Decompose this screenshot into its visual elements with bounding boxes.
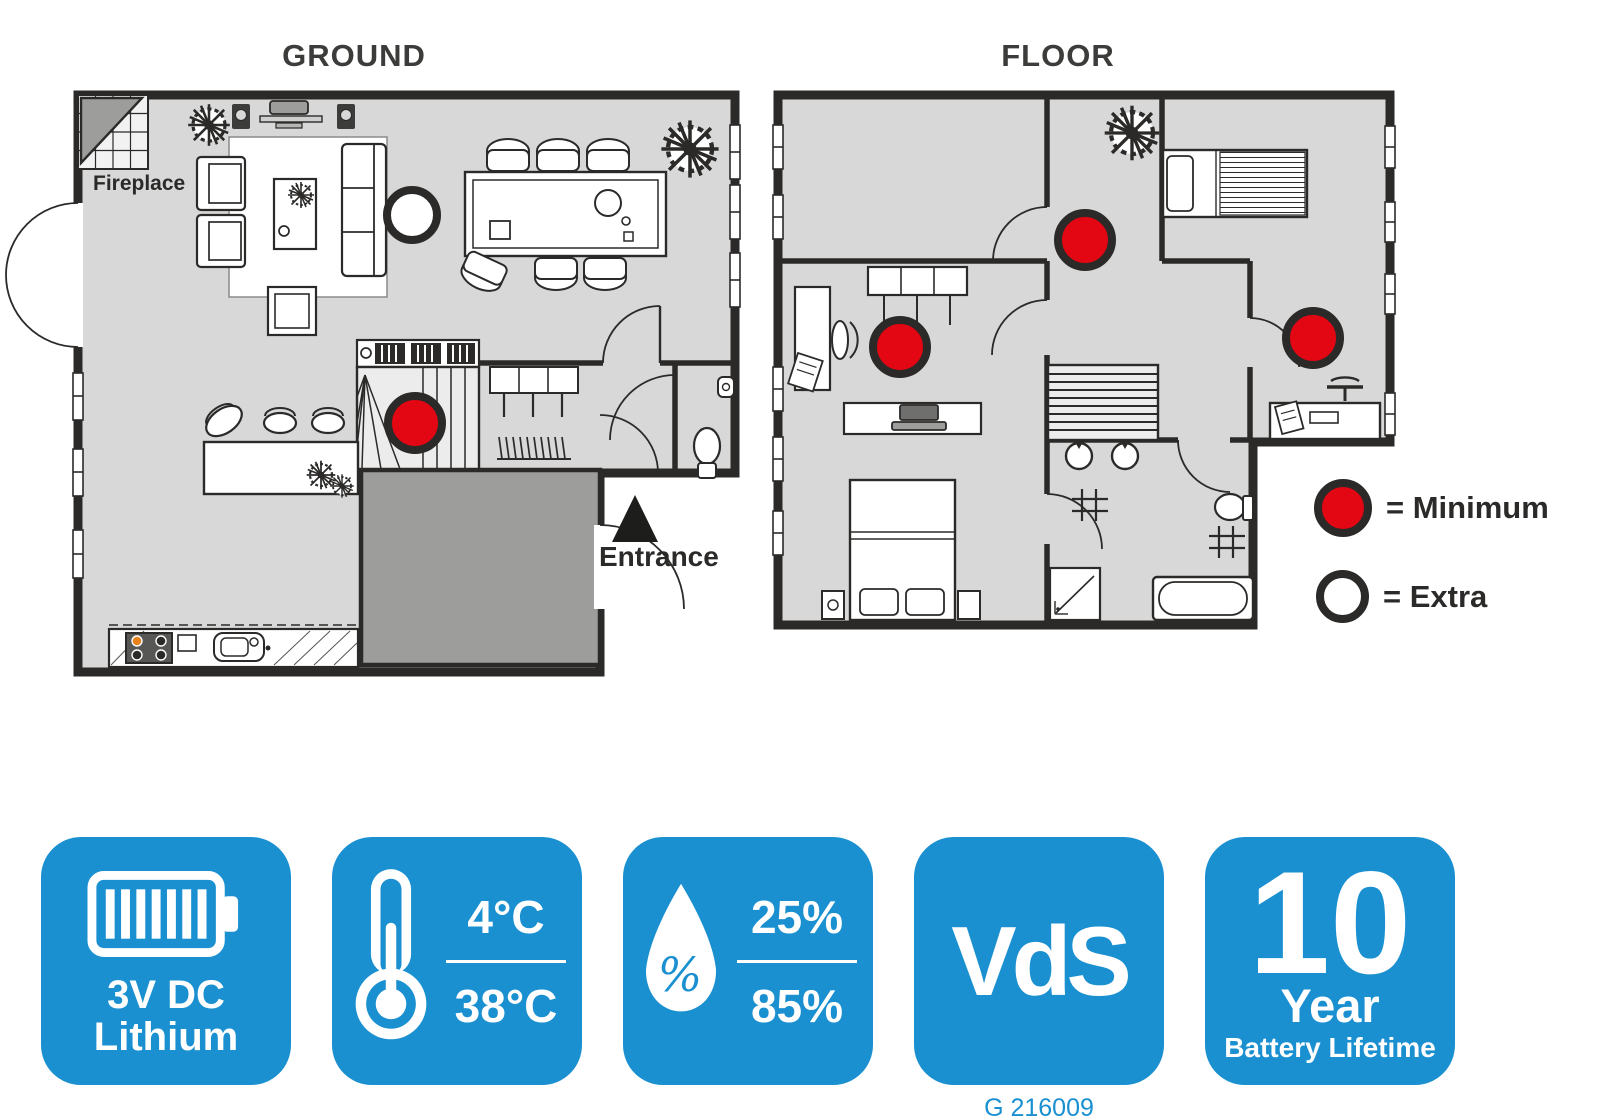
dining-chair [487, 139, 529, 171]
range-divider [446, 960, 566, 963]
dining-table [465, 172, 666, 256]
staircase [1048, 365, 1158, 440]
floor-plan-title: FLOOR [958, 38, 1158, 74]
approval-number: G 216009 [949, 1094, 1129, 1120]
humidity-max: 85% [751, 983, 843, 1029]
dining-chair [587, 139, 629, 171]
shower [1050, 568, 1100, 620]
feature-badges: 3V DC Lithium 4°C 38°C % [41, 837, 1455, 1085]
badge-temperature-range: 4°C 38°C [332, 837, 582, 1085]
lifetime-number: 10 [1249, 865, 1411, 982]
temperature-min: 4°C [467, 894, 544, 940]
sofa [342, 144, 386, 276]
stove [126, 633, 172, 663]
sink [214, 633, 271, 661]
lifetime-unit: Year [1280, 981, 1379, 1030]
plant-icon [307, 461, 336, 490]
smoke-detector-minimum [873, 320, 927, 374]
badge-humidity-range: % 25% 85% [623, 837, 873, 1085]
entrance-label: Entrance [599, 541, 719, 573]
minimum-detector-icon [1314, 479, 1372, 537]
plant-icon [288, 182, 314, 208]
range-divider [737, 960, 857, 963]
dining-chair [535, 258, 577, 290]
legend-minimum-label: = Minimum [1386, 490, 1549, 526]
thermometer-icon [348, 867, 434, 1051]
vds-logo: VdS [951, 912, 1127, 1010]
toilet [1215, 494, 1253, 520]
media-rack [357, 340, 479, 367]
badge-power-line2: Lithium [94, 1016, 238, 1058]
temperature-max: 38°C [455, 983, 558, 1029]
plant-icon [1105, 106, 1160, 161]
plant-icon [188, 104, 230, 146]
fireplace-label: Fireplace [93, 172, 185, 196]
armchair [197, 157, 245, 210]
entrance-arrow-icon [612, 495, 658, 542]
lifetime-caption: Battery Lifetime [1224, 1033, 1436, 1064]
extra-detector-icon [1316, 570, 1369, 623]
smoke-detector-minimum [1058, 213, 1112, 267]
battery-icon [87, 864, 245, 964]
speaker-icon [337, 104, 355, 129]
armchair [197, 215, 245, 267]
upper-floor-plan [770, 87, 1398, 633]
dining-chair [537, 139, 579, 171]
plant-icon [661, 120, 718, 177]
smoke-detector-extra [387, 190, 437, 240]
dining-chair [584, 258, 626, 290]
percent-symbol: % [658, 949, 702, 1003]
single-bed [1163, 150, 1307, 217]
fireplace [78, 95, 148, 169]
plant-icon [330, 474, 353, 497]
badge-power-line1: 3V DC [107, 974, 225, 1016]
smoke-detector-minimum [1286, 311, 1340, 365]
badge-vds-certification: VdS [914, 837, 1164, 1085]
entry-hall [361, 470, 600, 665]
humidity-min: 25% [751, 894, 843, 940]
badge-battery-lifetime: 10 Year Battery Lifetime [1205, 837, 1455, 1085]
badge-power-supply: 3V DC Lithium [41, 837, 291, 1085]
smoke-detector-minimum [388, 396, 442, 450]
legend-extra: = Extra [1316, 570, 1487, 623]
speaker-icon [232, 104, 250, 129]
legend-minimum: = Minimum [1314, 479, 1549, 537]
bathtub [1153, 577, 1253, 620]
kitchen-counter [109, 625, 358, 667]
footstool [268, 287, 316, 335]
ground-plan-title: GROUND [254, 38, 454, 74]
desk-with-lamp [844, 403, 981, 434]
legend-extra-label: = Extra [1383, 579, 1487, 615]
humidity-drop-icon: % [637, 881, 725, 1027]
infographic: GROUND FLOOR [0, 0, 1600, 1120]
